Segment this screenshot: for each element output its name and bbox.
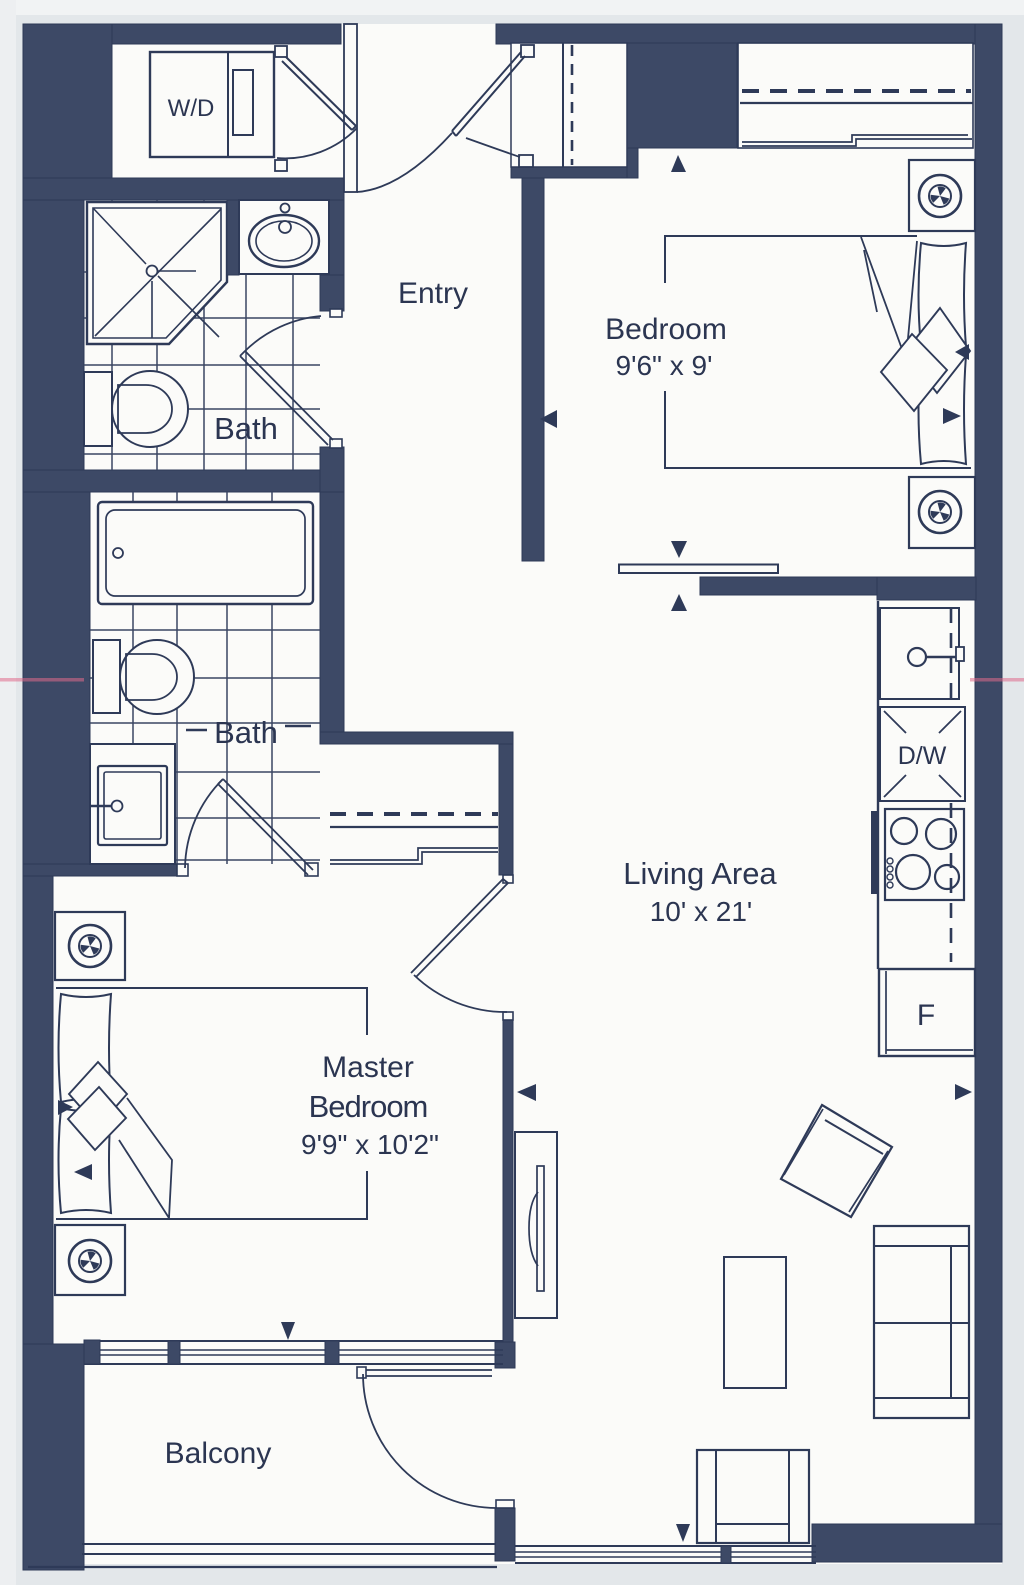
- svg-text:Bath: Bath: [214, 715, 278, 750]
- svg-text:Bath: Bath: [214, 411, 278, 446]
- svg-text:Living Area: Living Area: [623, 856, 777, 891]
- svg-text:9'9" x 10'2": 9'9" x 10'2": [301, 1129, 439, 1160]
- svg-text:Entry: Entry: [398, 277, 468, 310]
- svg-text:F: F: [917, 999, 935, 1032]
- svg-text:10' x 21': 10' x 21': [650, 896, 753, 927]
- svg-text:Bedroom: Bedroom: [309, 1089, 428, 1124]
- svg-text:D/W: D/W: [898, 742, 947, 770]
- svg-text:W/D: W/D: [168, 95, 215, 122]
- svg-text:9'6" x 9': 9'6" x 9': [616, 350, 713, 381]
- svg-text:Bedroom: Bedroom: [605, 313, 727, 346]
- svg-text:Balcony: Balcony: [165, 1437, 272, 1470]
- svg-text:Master: Master: [322, 1051, 414, 1084]
